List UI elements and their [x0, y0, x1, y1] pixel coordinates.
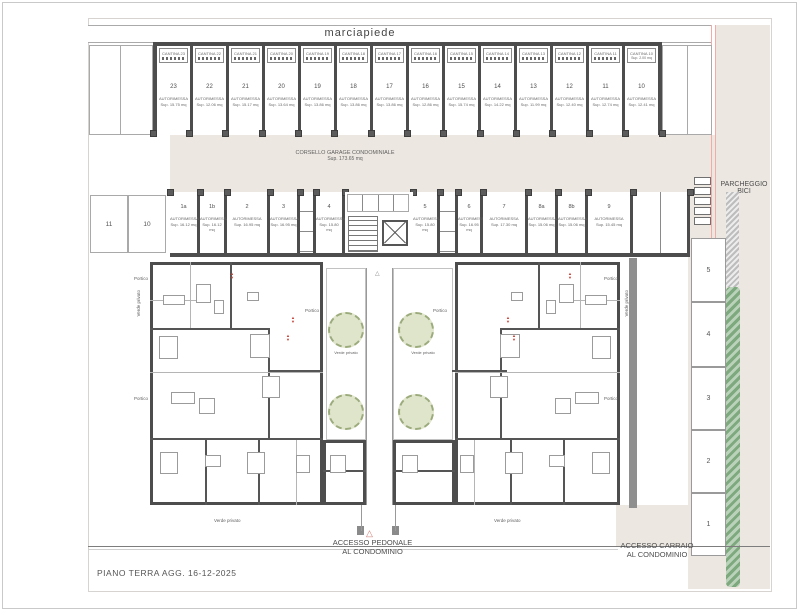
pillar	[437, 189, 444, 196]
corsello-paving	[170, 135, 770, 192]
furniture	[171, 392, 195, 404]
garage-area: Sup. 15.80 mq	[316, 222, 342, 232]
garage-type: AUTORIMESSA	[481, 96, 514, 101]
tree-icon	[328, 312, 364, 348]
garage-area: Sup. 12.74 mq	[589, 102, 622, 107]
garage-type: AUTORIMESSA	[170, 216, 197, 221]
wall-segment	[150, 438, 323, 440]
garage-cell: CANTINA 1313AUTORIMESSASup. 11.99 mq	[517, 46, 553, 135]
arrow-down: ▼	[291, 320, 295, 324]
cantina-hatch	[270, 57, 293, 60]
cantina-label: CANTINA 16	[411, 48, 440, 63]
garage-number: 16	[409, 84, 442, 90]
portico-label: Portico	[134, 276, 148, 281]
garage-number: 12	[553, 84, 586, 90]
sidewalk-label: marciapiede	[280, 27, 440, 39]
staircase-icon	[348, 216, 378, 252]
garage-number: 7	[483, 204, 525, 210]
garage-cell: 7AUTORIMESSASup. 17.30 mq	[483, 192, 528, 257]
portico-label: Portico	[305, 308, 319, 313]
furniture	[490, 376, 508, 398]
elevator-icon	[382, 220, 408, 246]
garage-type: AUTORIMESSA	[270, 216, 297, 221]
verde-privato-bottom-right: Verde privato	[494, 518, 521, 523]
cantina-hatch	[162, 57, 185, 60]
walkway-line-left	[361, 505, 362, 531]
cantina-label: CANTINA 22	[195, 48, 224, 63]
pillar	[222, 130, 229, 137]
garage-type: AUTORIMESSA	[265, 96, 298, 101]
cantina-name: CANTINA 13	[520, 51, 547, 56]
garage-cell: CANTINA 2020AUTORIMESSASup. 13.64 mq	[265, 46, 301, 135]
cantina-label: CANTINA 18	[339, 48, 368, 63]
arrow-down: ▼	[512, 338, 516, 342]
cantina-name: CANTINA 12	[556, 51, 583, 56]
garage-type: AUTORIMESSA	[413, 216, 437, 221]
garage-type: AUTORIMESSA	[337, 96, 370, 101]
cantina-small-cell	[440, 232, 455, 252]
pillar	[259, 130, 266, 137]
cantina-sup: Sup. 2.00 mq	[628, 56, 655, 61]
cantina-label: CANTINA 15	[447, 48, 476, 63]
garage-area: Sup. 13.86 mq	[337, 102, 370, 107]
garage-cell: 8aAUTORIMESSASup. 15.06 mq	[528, 192, 558, 257]
garage-cell	[633, 192, 690, 257]
wall-segment	[455, 438, 620, 440]
side-cell-divider-right	[687, 45, 688, 135]
garage-area: Sup. 13.86 mq	[373, 102, 406, 107]
garage-number: 8a	[528, 204, 555, 210]
pillar	[186, 130, 193, 137]
garage-number: 1a	[170, 204, 197, 210]
pillar	[525, 189, 532, 196]
cantina-name: CANTINA 17	[376, 51, 403, 56]
cantina-small-cell	[300, 212, 313, 232]
tree-icon	[398, 312, 434, 348]
cantina-hatch	[522, 57, 545, 60]
pedestrian-access-label: ACCESSO PEDONALE AL CONDOMINIO	[300, 538, 445, 556]
garage-number: 19	[301, 84, 334, 90]
partition-line	[474, 440, 475, 505]
garage-area: Sup. 16.12 mq	[170, 222, 197, 227]
furniture	[460, 455, 474, 473]
furniture	[511, 292, 523, 301]
corsello-label: CORSELLO GARAGE CONDOMINIALE Sup. 173.65…	[255, 150, 435, 162]
cantina-label: CANTINA 13	[519, 48, 548, 63]
tree-icon	[328, 394, 364, 430]
cantina-name: CANTINA 14	[484, 51, 511, 56]
garage-area: Sup. 14.22 mq	[481, 102, 514, 107]
furniture	[214, 300, 224, 314]
furniture	[500, 334, 520, 358]
garage-area: Sup. 15.75 mq	[157, 102, 190, 107]
cantina-small-cell	[300, 232, 313, 252]
garage-cell: 4AUTORIMESSASup. 15.80 mq	[316, 192, 345, 257]
garage-cell: CANTINA 1414AUTORIMESSASup. 14.22 mq	[481, 46, 517, 135]
side-cell-divider-left	[120, 45, 121, 135]
furniture	[247, 292, 259, 301]
furniture	[592, 336, 611, 359]
vehicle-access-label: ACCESSO CARRAIO AL CONDOMINIO	[598, 541, 716, 559]
garage-type: AUTORIMESSA	[553, 96, 586, 101]
pillar	[455, 189, 462, 196]
sheet-title: PIANO TERRA AGG. 16-12-2025	[97, 568, 237, 578]
pillar	[224, 189, 231, 196]
furniture	[546, 300, 556, 314]
cantina-label: CANTINA 21	[231, 48, 260, 63]
garage-number: 11	[589, 84, 622, 90]
walkway-line-right	[395, 505, 396, 531]
garage-cell: CANTINA 2222AUTORIMESSASup. 12.06 mq	[193, 46, 229, 135]
portico-label: Portico	[134, 396, 148, 401]
garage-cell: 8bAUTORIMESSASup. 15.06 mq	[558, 192, 588, 257]
pillar	[513, 130, 520, 137]
pillar	[555, 189, 562, 196]
parking-stall: 11	[90, 195, 128, 253]
entry-marker-icon: ▲▼	[512, 334, 516, 342]
garage-area: Sup. 12.41 mq	[625, 102, 658, 107]
cantina-label: CANTINA 11	[591, 48, 620, 63]
garage-cell: CANTINA 10Sup. 2.00 mq10AUTORIMESSASup. …	[625, 46, 658, 135]
garage-type: AUTORIMESSA	[625, 96, 658, 101]
furniture	[205, 455, 221, 467]
garage-area: Sup. 15.06 mq	[558, 222, 585, 227]
pillar	[368, 130, 375, 137]
garage-type: AUTORIMESSA	[445, 96, 478, 101]
parking-stall: 5	[691, 238, 726, 302]
garage-type: AUTORIMESSA	[588, 216, 630, 221]
garage-number: 2	[227, 204, 267, 210]
pillar	[480, 189, 487, 196]
garage-cell: 1aAUTORIMESSASup. 16.12 mq	[170, 192, 200, 257]
gravel-strip	[726, 192, 739, 287]
pillar	[586, 130, 593, 137]
central-corridor	[366, 268, 393, 505]
garage-area: Sup. 17.30 mq	[483, 222, 525, 227]
pillar	[549, 130, 556, 137]
garage-number: 8b	[558, 204, 585, 210]
cantina-label: CANTINA 23	[159, 48, 188, 63]
pillar	[659, 130, 666, 137]
garage-number: 17	[373, 84, 406, 90]
entry-marker-icon: ▲▼	[291, 316, 295, 324]
garage-area: Sup. 13.86 mq	[301, 102, 334, 107]
furniture	[505, 452, 523, 474]
cantina-hatch	[414, 57, 437, 60]
garage-cell	[300, 192, 316, 257]
furniture	[585, 295, 607, 305]
cantina-name: CANTINA 15	[448, 51, 475, 56]
pillar	[313, 189, 320, 196]
corridor-entry-arrow: △	[375, 270, 380, 277]
garage-area: Sup. 16.12 mq	[200, 222, 224, 232]
cantina-small-cell	[440, 212, 455, 232]
pillar	[477, 130, 484, 137]
garage-number: 5	[413, 204, 437, 210]
courtyard-verde-right: Verde privato	[393, 350, 453, 355]
cantina-name: CANTINA 16	[412, 51, 439, 56]
pillar	[297, 189, 304, 196]
garage-cell: CANTINA 1717AUTORIMESSASup. 13.86 mq	[373, 46, 409, 135]
pillar	[622, 130, 629, 137]
garage-number: 6	[458, 204, 480, 210]
garage-area: Sup. 12.86 mq	[409, 102, 442, 107]
garage-cell: 9AUTORIMESSASup. 15.45 mq	[588, 192, 633, 257]
garage-number: 23	[157, 84, 190, 90]
garage-area: Sup. 16.95 mq	[227, 222, 267, 227]
furniture	[555, 398, 571, 414]
cantina-small-cells	[347, 194, 409, 212]
garage-type: AUTORIMESSA	[528, 216, 555, 221]
entry-marker-icon: ▲▼	[568, 272, 572, 280]
garage-area: Sup. 15.74 mq	[445, 102, 478, 107]
furniture	[247, 452, 265, 474]
furniture	[402, 455, 418, 473]
garage-number: 4	[316, 204, 342, 210]
garage-number: 3	[270, 204, 297, 210]
garage-type: AUTORIMESSA	[301, 96, 334, 101]
garage-number: 13	[517, 84, 550, 90]
garage-type: AUTORIMESSA	[316, 216, 342, 221]
cantina-name: CANTINA 11	[592, 51, 619, 56]
portico-label: Portico	[433, 308, 447, 313]
pillar	[687, 189, 694, 196]
garage-type: AUTORIMESSA	[200, 216, 224, 221]
garage-type: AUTORIMESSA	[458, 216, 480, 221]
garage-cell	[440, 192, 458, 257]
furniture	[196, 284, 211, 303]
cantina-label: CANTINA 10Sup. 2.00 mq	[627, 48, 656, 63]
portico-label: Portico	[604, 276, 618, 281]
garage-number: 22	[193, 84, 226, 90]
furniture	[159, 336, 178, 359]
garage-cell: 3AUTORIMESSASup. 16.95 mq	[270, 192, 300, 257]
pillar	[295, 130, 302, 137]
entry-marker-icon: ▲▼	[230, 272, 234, 280]
garage-cell: CANTINA 2121AUTORIMESSASup. 15.17 mq	[229, 46, 265, 135]
wall-segment	[500, 328, 620, 330]
arrow-down: ▼	[230, 276, 234, 280]
wall-segment	[563, 438, 565, 505]
pillar	[331, 130, 338, 137]
cantina-label: CANTINA 17	[375, 48, 404, 63]
garage-number: 9	[588, 204, 630, 210]
garage-type: AUTORIMESSA	[589, 96, 622, 101]
parking-stall: 2	[691, 430, 726, 493]
garage-number: 1b	[200, 204, 224, 210]
cantina-hatch	[234, 57, 257, 60]
pillar	[440, 130, 447, 137]
side-cell-topleft	[89, 45, 153, 135]
furniture	[549, 455, 565, 467]
furniture	[199, 398, 215, 414]
garage-cell: CANTINA 1515AUTORIMESSASup. 15.74 mq	[445, 46, 481, 135]
furniture	[262, 376, 280, 398]
pillar	[267, 189, 274, 196]
garage-type: AUTORIMESSA	[517, 96, 550, 101]
verde-privato-right: Verde privato	[624, 290, 629, 317]
garage-number: 18	[337, 84, 370, 90]
garage-cell: CANTINA 2323AUTORIMESSASup. 15.75 mq	[157, 46, 193, 135]
garage-type: AUTORIMESSA	[157, 96, 190, 101]
bike-parking-label: PARCHEGGIO BICI	[714, 181, 774, 195]
furniture	[250, 334, 270, 358]
garage-cell: CANTINA 1111AUTORIMESSASup. 12.74 mq	[589, 46, 625, 135]
garage-cell: CANTINA 1212AUTORIMESSASup. 12.40 mq	[553, 46, 589, 135]
garage-cell: 2AUTORIMESSASup. 16.95 mq	[227, 192, 270, 257]
garage-area: Sup. 15.17 mq	[229, 102, 262, 107]
cantina-label: CANTINA 14	[483, 48, 512, 63]
cantina-hatch	[558, 57, 581, 60]
cantina-name: CANTINA 18	[340, 51, 367, 56]
wall-segment	[150, 328, 270, 330]
cantina-hatch	[378, 57, 401, 60]
garage-cell: 1bAUTORIMESSASup. 16.12 mq	[200, 192, 227, 257]
cantina-label: CANTINA 19	[303, 48, 332, 63]
cantina-name: CANTINA 23	[160, 51, 187, 56]
cantina-label: CANTINA 20	[267, 48, 296, 63]
garage-cell: 5AUTORIMESSASup. 15.80 mq	[413, 192, 440, 257]
garage-type: AUTORIMESSA	[483, 216, 525, 221]
garage-cell: CANTINA 1616AUTORIMESSASup. 12.86 mq	[409, 46, 445, 135]
wall-segment	[538, 262, 540, 328]
garage-area: Sup. 12.40 mq	[553, 102, 586, 107]
pillar	[630, 189, 637, 196]
furniture	[559, 284, 574, 303]
stair-core	[345, 192, 413, 257]
garage-cell: CANTINA 1919AUTORIMESSASup. 13.86 mq	[301, 46, 337, 135]
cantina-hatch	[594, 57, 617, 60]
cantina-divider	[660, 192, 661, 253]
cantina-hatch	[450, 57, 473, 60]
garage-number: 14	[481, 84, 514, 90]
garage-type: AUTORIMESSA	[409, 96, 442, 101]
garage-area: Sup. 16.95 mq	[270, 222, 297, 227]
cantina-label: CANTINA 12	[555, 48, 584, 63]
garage-type: AUTORIMESSA	[558, 216, 585, 221]
garage-area: Sup. 15.45 mq	[588, 222, 630, 227]
courtyard-verde-left: Verde privato	[326, 350, 366, 355]
furniture	[592, 452, 610, 474]
pillar	[404, 130, 411, 137]
partition-line	[580, 262, 581, 328]
cantina-hatch	[342, 57, 365, 60]
garage-type: AUTORIMESSA	[373, 96, 406, 101]
garage-number: 15	[445, 84, 478, 90]
garage-row-top: CANTINA 2323AUTORIMESSASup. 15.75 mqCANT…	[153, 42, 662, 135]
portico-label: Portico	[604, 396, 618, 401]
partition-line	[190, 262, 191, 328]
pillar	[585, 189, 592, 196]
parking-stall: 4	[691, 302, 726, 367]
garage-type: AUTORIMESSA	[193, 96, 226, 101]
furniture	[163, 295, 185, 305]
garage-cell: 6AUTORIMESSASup. 16.95 mq	[458, 192, 483, 257]
tree-icon	[398, 394, 434, 430]
hedge-strip	[726, 287, 740, 587]
partition-line	[150, 372, 323, 373]
cantina-name: CANTINA 22	[196, 51, 223, 56]
parking-stall: 10	[128, 195, 166, 253]
furniture	[160, 452, 178, 474]
pillar	[197, 189, 204, 196]
pillar	[150, 130, 157, 137]
floor-plan-sheet: marciapiede CANTINA 2323AUTORIMESSASup. …	[0, 0, 799, 611]
bike-rack-icon	[694, 177, 711, 227]
garage-area: Sup. 16.95 mq	[458, 222, 480, 232]
garage-number: 20	[265, 84, 298, 90]
garage-type: AUTORIMESSA	[227, 216, 267, 221]
pillar	[167, 189, 174, 196]
arrow-down: ▼	[286, 338, 290, 342]
east-boundary-wall	[629, 258, 637, 508]
arrow-down: ▼	[506, 320, 510, 324]
furniture	[575, 392, 599, 404]
garage-type: AUTORIMESSA	[229, 96, 262, 101]
cantina-hatch	[198, 57, 221, 60]
wall-segment	[205, 438, 207, 505]
garage-area: Sup. 15.06 mq	[528, 222, 555, 227]
parking-stall: 3	[691, 367, 726, 430]
verde-privato-left: Verde privato	[136, 290, 141, 317]
garage-cell: CANTINA 1818AUTORIMESSASup. 13.86 mq	[337, 46, 373, 135]
garage-area: Sup. 15.80 mq	[413, 222, 437, 232]
garage-area: Sup. 13.64 mq	[265, 102, 298, 107]
garage-area: Sup. 11.99 mq	[517, 102, 550, 107]
garage-number: 21	[229, 84, 262, 90]
furniture	[296, 455, 310, 473]
cantina-hatch	[306, 57, 329, 60]
entry-marker-icon: ▲▼	[286, 334, 290, 342]
furniture	[330, 455, 346, 473]
garage-area: Sup. 12.06 mq	[193, 102, 226, 107]
verde-privato-bottom-left: Verde privato	[214, 518, 241, 523]
partition-line	[455, 372, 620, 373]
garage-number: 10	[625, 84, 658, 90]
cantina-name: CANTINA 21	[232, 51, 259, 56]
cantina-name: CANTINA 19	[304, 51, 331, 56]
cantina-name: CANTINA 20	[268, 51, 295, 56]
entry-marker-icon: ▲▼	[506, 316, 510, 324]
cantina-hatch	[486, 57, 509, 60]
driveway-top-right	[716, 25, 770, 135]
arrow-down: ▼	[568, 276, 572, 280]
